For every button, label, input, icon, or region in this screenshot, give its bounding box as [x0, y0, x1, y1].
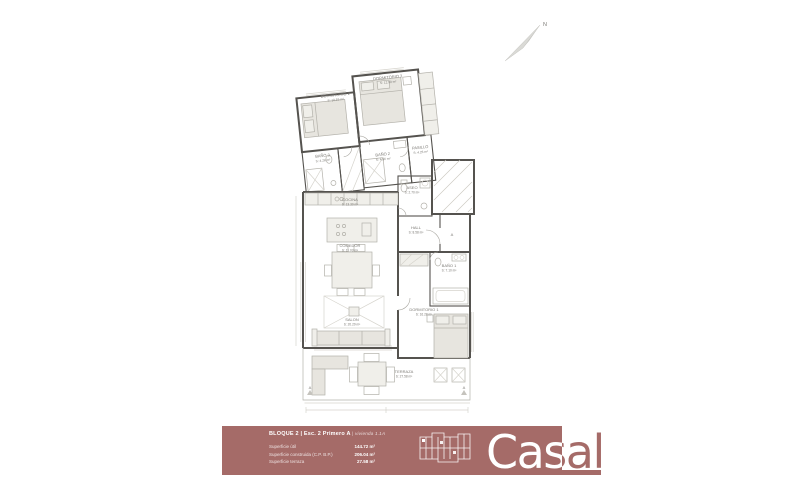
room-area-bano-3: S: 4.26 m² [315, 158, 330, 164]
surface-row: Superficie construida (C.P. B.P.) 206.04… [269, 451, 375, 459]
wardrobe [418, 72, 438, 135]
surface-value: 206.04 m² [354, 451, 375, 459]
section-marker-left: A [309, 385, 312, 390]
room-area-bano-2: S: 4.56 m² [376, 156, 391, 162]
surface-value: 27.58 m² [357, 458, 375, 466]
plan-title-sub: | vivienda 1.1A [352, 431, 385, 436]
surface-label: Superficie construida (C.P. B.P.) [269, 451, 333, 459]
surface-row: Superficie terraza 27.58 m² [269, 458, 375, 466]
room-label-cocina: COCINA [342, 197, 358, 202]
north-label: N [543, 22, 547, 28]
lower-floor-section: COCINA S: 13.30 m² ASEO S: 2.70 m² HALL … [296, 160, 474, 413]
room-area-dormitorio-1: S: 16.28 m² [416, 313, 432, 317]
room-label-aseo: ASEO [406, 185, 417, 190]
section-marker-right: A [463, 385, 466, 390]
surface-label: Superficie terraza [269, 458, 304, 466]
room-area-terraza: S: 27.58 m² [396, 375, 412, 379]
entrance-marker: A [451, 232, 454, 237]
surface-value: 144.72 m² [354, 443, 375, 451]
logo-underline [562, 470, 601, 475]
surface-label: Superficie útil [269, 443, 296, 451]
room-area-salon: S: 20.29 m² [344, 323, 360, 327]
room-area-hall: S: 8.58 m² [409, 231, 424, 235]
room-area-bano-1: S: 7.10 m² [442, 269, 457, 273]
plan-title: BLOQUE 2 | Esc. 2 Primero A | vivienda 1… [269, 431, 385, 437]
room-label-hall: HALL [411, 225, 422, 230]
room-area-comedor: S: 11.03 m² [342, 249, 358, 253]
plan-title-main: BLOQUE 2 | Esc. 2 Primero A [269, 431, 350, 437]
surface-row: Superficie útil 144.72 m² [269, 443, 375, 451]
north-arrow-icon: N [505, 22, 547, 61]
room-area-aseo: S: 2.70 m² [405, 191, 420, 195]
room-label-terraza: TERRAZA [395, 369, 414, 374]
bano-2-fixtures [362, 140, 410, 183]
site-keyplan-icon [418, 431, 472, 463]
room-area-cocina: S: 13.30 m² [342, 203, 358, 207]
casal-logo: Casal Casal [486, 430, 616, 474]
room-label-dormitorio-1: DORMITORIO 1 [409, 307, 439, 312]
room-label-salon: SALON [345, 317, 359, 322]
room-area-pasillo: S: 4.26 m² [413, 150, 428, 156]
bano-1-fixtures [433, 254, 468, 304]
title-block-text: BLOQUE 2 | Esc. 2 Primero A | vivienda 1… [269, 431, 385, 466]
plan-page: N [0, 0, 788, 477]
bed-dormitorio-2 [301, 99, 348, 137]
room-label-comedor: COMEDOR [340, 243, 361, 248]
section-marker-icon [461, 390, 467, 395]
floor-plan-image: N [0, 0, 788, 477]
surface-table: Superficie útil 144.72 m² Superficie con… [269, 443, 375, 466]
kitchen-island [327, 218, 377, 242]
room-label-bano-1: BAÑO 1 [442, 263, 457, 268]
